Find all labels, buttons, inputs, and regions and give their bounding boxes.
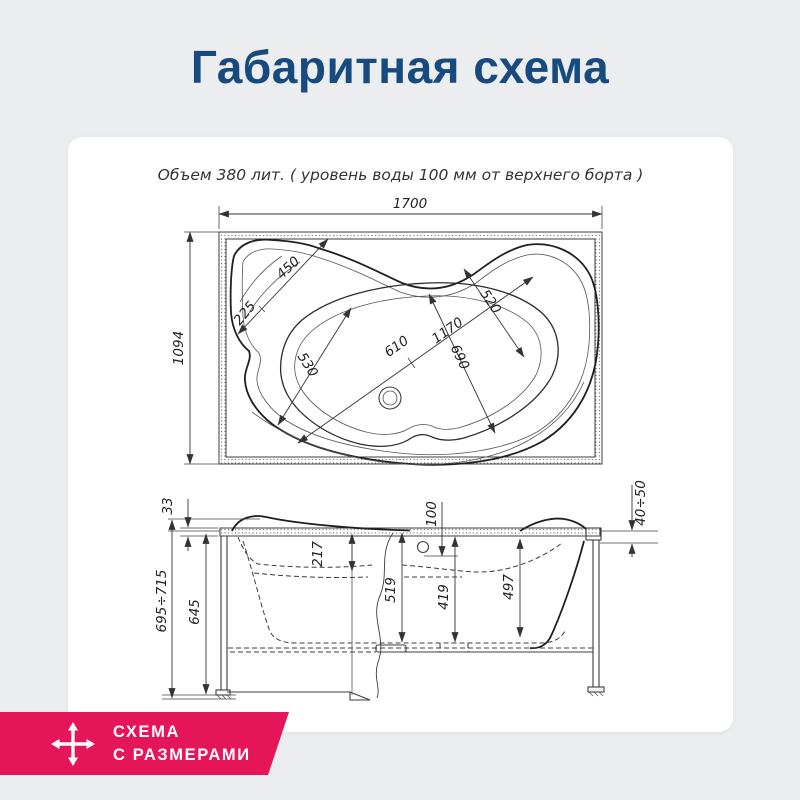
dim-depth-center: 419 (436, 584, 452, 610)
tub-inner-rim (242, 249, 589, 455)
tub-rim-step (252, 382, 584, 465)
dim-rim-thickness: 33 (160, 497, 176, 514)
foot-left-hatch (217, 695, 231, 699)
dim-rim-range: 40÷50 (633, 480, 649, 526)
front-view: 33 217 100 40÷50 519 419 497 645 695÷715 (154, 480, 658, 700)
inner-profile-bottom (243, 541, 566, 643)
badge-line-2: С РАЗМЕРАМИ (113, 744, 251, 766)
leg-right (593, 540, 599, 687)
dim-bowl-width-right: 690 (447, 342, 473, 372)
foot-right-hatch (589, 692, 603, 696)
dim-height-body: 645 (187, 599, 203, 625)
dim-overall-depth: 1094 (171, 331, 187, 365)
inner-profile-ledge-right (402, 543, 562, 572)
apron-bottom-edge (227, 692, 370, 700)
technical-drawing: 1700 1094 225 450 610 1170 530 690 520 (0, 0, 800, 800)
move-arrows-cross (58, 729, 88, 759)
drain-circle-inner (383, 391, 397, 405)
basin-inner-bottom (295, 296, 541, 435)
apron-left-edge (221, 536, 227, 690)
badge-line-1: СХЕМА (113, 721, 251, 743)
drain-circle-outer (379, 387, 401, 409)
dim-bowl-mid-length: 610 (382, 333, 412, 361)
move-arrows-icon (50, 721, 96, 767)
dim-height-range: 695÷715 (154, 570, 170, 633)
dim-overall-width: 1700 (393, 196, 427, 212)
overflow-circle (418, 542, 429, 553)
dim-headrest-offset: 225 (231, 298, 260, 328)
break-line (376, 533, 393, 698)
foot-right (588, 687, 604, 692)
inner-profile-seat (254, 573, 462, 578)
wall-frame-band (219, 232, 602, 464)
top-view: 1700 1094 225 450 610 1170 530 690 520 (171, 196, 602, 465)
dim-ledge-depth: 217 (310, 541, 326, 567)
dim-overflow-offset: 100 (424, 501, 440, 527)
dim-bowl-width-left: 530 (294, 350, 321, 380)
dim-depth-left: 519 (383, 577, 399, 603)
size-badge: СХЕМА С РАЗМЕРАМИ (0, 712, 289, 775)
rim-band (220, 528, 600, 536)
badge-text: СХЕМА С РАЗМЕРАМИ (113, 721, 251, 766)
basin-outline (281, 283, 559, 447)
dim-depth-right: 497 (501, 574, 517, 600)
